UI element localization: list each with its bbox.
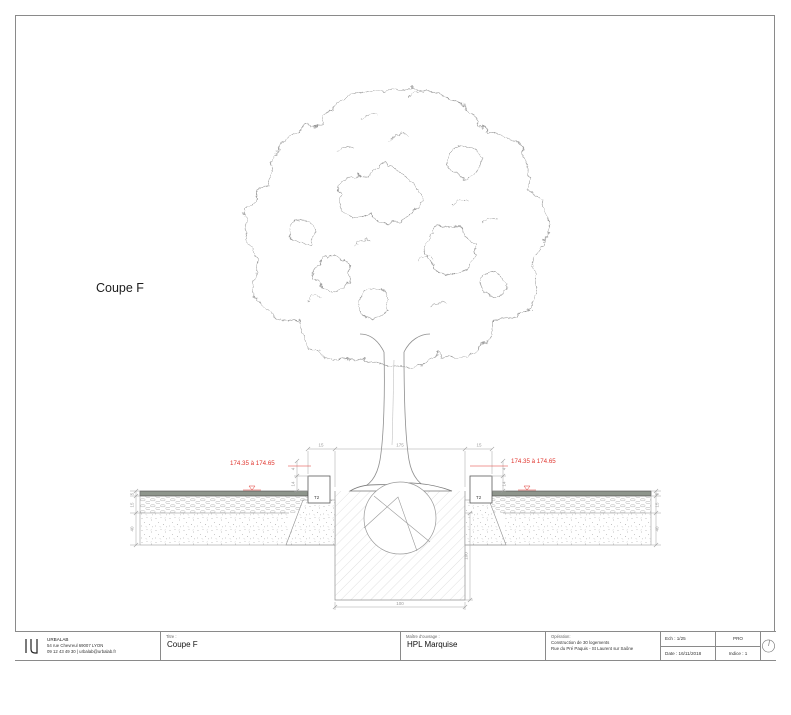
scale-date-cell: Ech : 1/25 Date : 16/11/2018 <box>660 632 715 660</box>
kerb-right-label: T2 <box>476 495 482 500</box>
dim-top-right: 15 <box>476 443 482 448</box>
north-cell <box>760 632 776 660</box>
dim-layer-sub-right: 40 <box>655 526 660 532</box>
north-indicator-icon <box>761 637 776 655</box>
kerb-right: T2 <box>470 476 492 503</box>
tree-trunk <box>356 334 434 491</box>
surface-course-left <box>140 491 308 496</box>
dim-top-center: 175 <box>396 443 404 448</box>
dim-layer-surface-left: 5 <box>130 492 135 495</box>
title-block: URBALAB 54 rue Chevreul 69007 LYON 09 12… <box>15 631 776 661</box>
dim-kerb-top-right: 4 <box>502 467 507 470</box>
level-right: 174.35 à 174.65 <box>511 458 556 465</box>
operation-cell: Opération: Construction de 30 logements … <box>545 632 660 660</box>
client-label: Maître d'ouvrage : <box>406 634 440 639</box>
company-info: URBALAB 54 rue Chevreul 69007 LYON 09 12… <box>47 637 116 655</box>
phase-value: PRO <box>716 632 760 646</box>
tree-drawing <box>243 87 547 491</box>
date-value: Date : 16/11/2018 <box>661 646 715 661</box>
dim-kerb-top-left: 4 <box>291 467 296 470</box>
phase-cell: PRO Indice : 1 <box>715 632 760 660</box>
dim-kerb-bottom-right: 14 <box>502 481 507 487</box>
dim-layer-surface-right: 5 <box>655 492 660 495</box>
dim-layer-base-left: 15 <box>130 502 135 508</box>
level-mark-left <box>243 486 261 490</box>
subbase-layer-left <box>140 513 288 545</box>
level-left: 174.35 à 174.65 <box>230 460 275 467</box>
index-value: Indice : 1 <box>716 646 760 661</box>
kerb-left-label: T2 <box>314 495 320 500</box>
root-ball <box>364 482 436 554</box>
urbalab-logo-icon <box>22 636 42 656</box>
section-drawing: T2 T2 15 175 15 <box>0 0 791 715</box>
title-value: Coupe F <box>167 640 198 649</box>
base-layer-right <box>492 496 651 513</box>
client-value: HPL Marquise <box>407 640 457 649</box>
tree-canopy <box>243 87 547 367</box>
client-cell: Maître d'ouvrage : HPL Marquise <box>400 632 545 660</box>
tree-canopy-texture <box>306 91 496 306</box>
subbase-layer-right <box>504 513 651 545</box>
kerb-left: T2 <box>308 476 330 503</box>
dim-layer-base-right: 15 <box>655 502 660 508</box>
dim-pit-depth: 100 <box>464 552 469 560</box>
dim-pit-width: 100 <box>396 601 404 606</box>
surface-course-right <box>492 491 651 496</box>
dim-layer-sub-left: 40 <box>130 526 135 532</box>
drawing-sheet: Coupe F <box>0 0 791 715</box>
dim-top-left: 15 <box>318 443 324 448</box>
scale-value: Ech : 1/25 <box>661 632 715 646</box>
company-contact: 09 12 43 49 30 | urbalab@urbalab.fr <box>47 649 116 655</box>
title-cell: Titre : Coupe F <box>160 632 400 660</box>
base-layer-left <box>140 496 308 513</box>
title-label: Titre : <box>166 634 177 639</box>
dim-kerb-bottom-left: 14 <box>291 481 296 487</box>
company-cell: URBALAB 54 rue Chevreul 69007 LYON 09 12… <box>15 632 160 660</box>
operation-line2: Rue du Pré Paquis - St Laurent sur Saône <box>551 646 660 652</box>
ground-section: T2 T2 <box>140 476 651 600</box>
level-mark-right <box>518 486 536 490</box>
